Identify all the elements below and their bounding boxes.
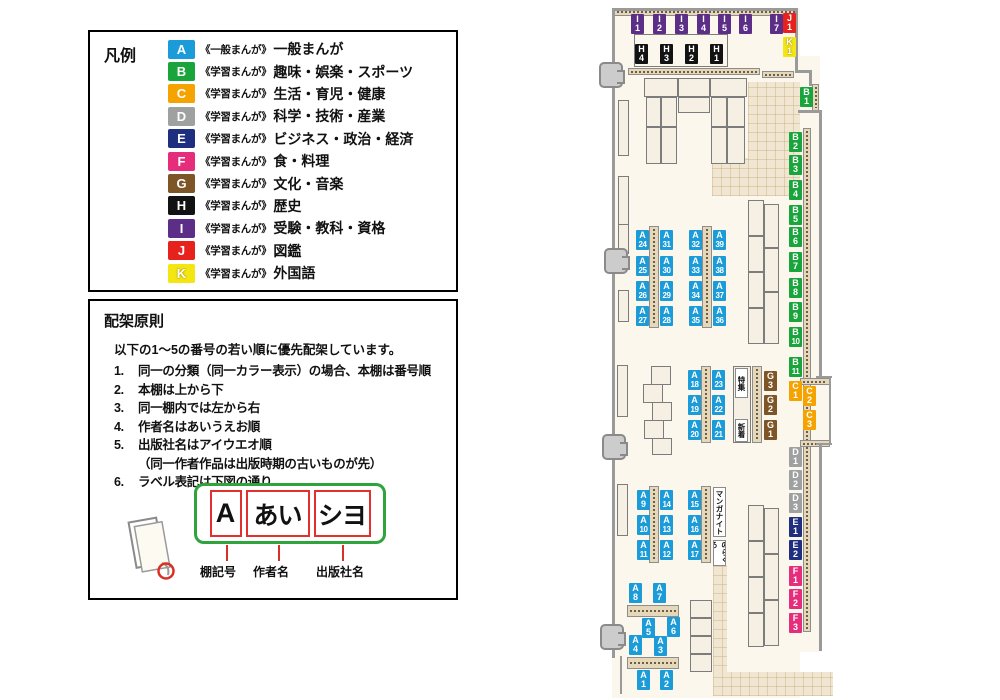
- shelf-label-number: 3: [679, 24, 684, 33]
- shelf-label-number: 3: [793, 165, 798, 174]
- shelf-label-number: 17: [691, 550, 699, 559]
- shelf: [764, 292, 779, 344]
- shelf-label-i1: I1: [631, 14, 644, 34]
- shelf-label-number: 4: [639, 54, 644, 63]
- shelf-label-a7: A7: [653, 583, 666, 603]
- shelf-label-f3: F3: [789, 613, 802, 633]
- shelf-label-i3: I3: [675, 14, 688, 34]
- shelf-label-a18: A18: [688, 370, 701, 390]
- shelf-label-number: 28: [663, 316, 671, 325]
- wall: [612, 8, 798, 11]
- table: [644, 78, 678, 97]
- bookshelf: [702, 226, 712, 328]
- shelf: [764, 600, 779, 646]
- shelf-label-number: 33: [692, 266, 700, 275]
- table: [678, 78, 710, 97]
- shelf-label-j1: J1: [783, 13, 796, 33]
- wall: [819, 112, 822, 378]
- wall-shelf: [618, 176, 629, 226]
- shelf-label-letter: A: [692, 257, 699, 266]
- shelf-label-number: 3: [793, 503, 798, 512]
- shelf-label-number: 7: [793, 262, 798, 271]
- shelf-label-a33: A33: [689, 256, 702, 276]
- shelf-label-number: 4: [633, 645, 638, 654]
- shelf-label-g1: G1: [764, 420, 777, 440]
- bookshelf: [701, 366, 711, 443]
- shelf-label-number: 31: [663, 240, 671, 249]
- walkway: [713, 565, 727, 675]
- table: [661, 127, 677, 164]
- shelf-label-b5: B5: [789, 205, 802, 225]
- shelf-label-letter: A: [691, 541, 698, 550]
- shelf-label-a32: A32: [689, 230, 702, 250]
- wall: [829, 377, 831, 445]
- shelf-label-a31: A31: [660, 230, 673, 250]
- shelf-label-number: 26: [639, 291, 647, 300]
- area-label: 特集: [735, 368, 748, 398]
- table: [661, 97, 677, 127]
- shelf-label-number: 11: [792, 367, 799, 376]
- area-label: のらくろ: [713, 540, 726, 566]
- shelf-label-number: 39: [716, 240, 724, 249]
- shelf-label-letter: A: [663, 541, 670, 550]
- shelf: [764, 508, 779, 554]
- shelf: [748, 200, 764, 236]
- shelf-label-number: 3: [664, 54, 669, 63]
- shelf-label-letter: A: [663, 307, 670, 316]
- entrance-door: [604, 248, 628, 274]
- shelf-label-number: 10: [640, 525, 648, 534]
- shelf-label-h3: H3: [660, 44, 673, 64]
- bookshelf: [762, 71, 794, 78]
- shelf-label-i2: I2: [653, 14, 666, 34]
- table: [710, 78, 747, 97]
- shelf-label-number: 5: [722, 24, 727, 33]
- shelf-label-a39: A39: [713, 230, 726, 250]
- shelf-label-b9: B9: [789, 302, 802, 322]
- shelf-label-number: 3: [793, 623, 798, 632]
- shelf: [690, 618, 712, 636]
- shelf-label-a4: A4: [629, 635, 642, 655]
- table: [644, 420, 664, 439]
- shelf-label-number: 2: [793, 480, 798, 489]
- shelf-label-number: 3: [768, 381, 773, 390]
- shelf: [764, 554, 779, 600]
- shelf-label-a8: A8: [629, 583, 642, 603]
- wall: [620, 656, 622, 694]
- shelf-label-h1: H1: [710, 44, 723, 64]
- shelf-label-number: 16: [691, 525, 699, 534]
- shelf-label-b7: B7: [789, 252, 802, 272]
- bookshelf: [627, 605, 679, 617]
- bookshelf: [800, 378, 830, 385]
- shelf-label-a16: A16: [688, 515, 701, 535]
- shelf-label-a23: A23: [712, 370, 725, 390]
- wall-shelf: [617, 365, 628, 417]
- shelf-label-letter: A: [663, 282, 670, 291]
- shelf-label-letter: A: [639, 257, 646, 266]
- shelf-label-letter: A: [663, 491, 670, 500]
- shelf-label-number: 22: [715, 405, 723, 414]
- shelf: [690, 600, 712, 618]
- shelf: [748, 236, 764, 272]
- shelf-label-number: 5: [793, 215, 798, 224]
- shelf-label-a29: A29: [660, 281, 673, 301]
- shelf-label-b4: B4: [789, 180, 802, 200]
- table: [651, 366, 671, 385]
- shelf-label-a27: A27: [636, 306, 649, 326]
- shelf-label-d1: D1: [789, 447, 802, 467]
- shelf-label-a13: A13: [660, 515, 673, 535]
- shelf-label-number: 21: [715, 430, 723, 439]
- shelf-label-number: 4: [701, 24, 706, 33]
- shelf-label-letter: A: [663, 231, 670, 240]
- shelf: [690, 654, 712, 672]
- shelf-label-number: 3: [658, 646, 663, 655]
- wall-shelf: [617, 484, 628, 536]
- shelf-label-k1: K1: [783, 37, 796, 57]
- shelf-label-number: 2: [768, 405, 773, 414]
- shelf-label-a6: A6: [667, 617, 680, 637]
- wall: [612, 8, 615, 658]
- shelf-label-d3: D3: [789, 493, 802, 513]
- shelf-label-number: 2: [664, 680, 669, 689]
- bookshelf: [649, 226, 659, 328]
- shelf-label-i4: I4: [697, 14, 710, 34]
- table: [711, 127, 727, 164]
- shelf-label-a35: A35: [689, 306, 702, 326]
- shelf-label-number: 1: [641, 680, 646, 689]
- shelf-label-a21: A21: [712, 420, 725, 440]
- shelf-label-b10: B10: [789, 327, 802, 347]
- shelf-label-letter: A: [640, 516, 647, 525]
- shelf-label-number: 24: [639, 240, 647, 249]
- shelf-label-letter: A: [692, 231, 699, 240]
- shelf-label-d2: D2: [789, 470, 802, 490]
- shelf-label-a11: A11: [637, 540, 650, 560]
- shelf-label-number: 8: [633, 593, 638, 602]
- shelf-label-i7: I7: [770, 14, 783, 34]
- shelf-label-a22: A22: [712, 395, 725, 415]
- entrance-door: [600, 624, 624, 650]
- shelf-label-number: 38: [716, 266, 724, 275]
- shelf-label-i6: I6: [739, 14, 752, 34]
- shelf-label-b8: B8: [789, 278, 802, 298]
- shelf-label-a37: A37: [713, 281, 726, 301]
- shelf-label-number: 7: [774, 24, 779, 33]
- shelf-label-letter: A: [663, 516, 670, 525]
- shelf-label-number: 2: [657, 24, 662, 33]
- area-label: マンガナイト: [713, 487, 726, 537]
- shelf: [764, 248, 779, 292]
- shelf-label-letter: A: [716, 257, 723, 266]
- entrance-door: [602, 434, 626, 460]
- shelf-label-number: 6: [743, 24, 748, 33]
- entrance-door: [599, 62, 623, 88]
- table: [727, 127, 745, 164]
- shelf-label-a38: A38: [713, 256, 726, 276]
- shelf-label-letter: A: [715, 396, 722, 405]
- walkway: [713, 672, 833, 696]
- shelf-label-letter: A: [692, 282, 699, 291]
- table: [652, 438, 672, 455]
- shelf-label-letter: B: [792, 358, 799, 367]
- shelf-label-number: 1: [793, 457, 798, 466]
- bookshelf: [628, 68, 760, 75]
- shelf: [748, 308, 764, 344]
- table: [646, 127, 661, 164]
- shelf-label-h4: H4: [635, 44, 648, 64]
- shelf-label-number: 27: [639, 316, 647, 325]
- shelf-label-a17: A17: [688, 540, 701, 560]
- shelf-label-number: 2: [793, 599, 798, 608]
- shelf-label-number: 11: [640, 550, 647, 559]
- shelf-label-number: 10: [792, 337, 800, 346]
- shelf-label-number: 19: [691, 405, 699, 414]
- shelf-label-number: 2: [807, 396, 812, 405]
- shelf: [748, 577, 764, 613]
- shelf-label-letter: A: [639, 282, 646, 291]
- shelf-label-a30: A30: [660, 256, 673, 276]
- shelf-label-number: 6: [671, 627, 676, 636]
- shelf-label-letter: A: [692, 307, 699, 316]
- shelf-label-number: 7: [657, 593, 662, 602]
- shelf-label-number: 8: [793, 288, 798, 297]
- shelf-label-b6: B6: [789, 227, 802, 247]
- shelf-label-number: 2: [793, 142, 798, 151]
- shelf-label-a15: A15: [688, 490, 701, 510]
- shelf-label-b1: B1: [800, 87, 813, 107]
- shelf-label-a25: A25: [636, 256, 649, 276]
- shelf-label-e2: E2: [789, 540, 802, 560]
- wall: [819, 445, 822, 651]
- shelf-label-b11: B11: [789, 357, 802, 377]
- shelf-label-c3: C3: [803, 410, 816, 430]
- shelf-label-number: 13: [663, 525, 671, 534]
- shelf-label-letter: A: [716, 282, 723, 291]
- shelf-label-a5: A5: [642, 618, 655, 638]
- table: [643, 384, 663, 403]
- shelf-label-letter: A: [639, 231, 646, 240]
- table: [652, 402, 672, 421]
- shelf-label-number: 34: [692, 291, 700, 300]
- shelf-label-number: 36: [716, 316, 724, 325]
- shelf-label-number: 1: [793, 391, 798, 400]
- table: [678, 97, 710, 113]
- shelf-label-number: 2: [793, 550, 798, 559]
- shelf-label-number: 1: [793, 576, 798, 585]
- page: 凡例 A《一般まんが》一般まんがB《学習まんが》趣味・娯楽・スポーツC《学習まん…: [0, 0, 1000, 700]
- shelf-label-letter: A: [716, 231, 723, 240]
- floor-map: I1I2I3I4I5I6I7J1K1H4H3H2H1B1B2B3B4B5B6B7…: [0, 0, 1000, 700]
- shelf-label-f1: F1: [789, 566, 802, 586]
- shelf-label-number: 23: [715, 380, 723, 389]
- shelf-label-g2: G2: [764, 395, 777, 415]
- shelf-label-letter: A: [691, 371, 698, 380]
- shelf-label-a28: A28: [660, 306, 673, 326]
- shelf-label-a1: A1: [637, 670, 650, 690]
- shelf-label-number: 1: [804, 97, 809, 106]
- shelf-label-letter: A: [691, 516, 698, 525]
- shelf-label-g3: G3: [764, 371, 777, 391]
- shelf: [748, 505, 764, 541]
- shelf-label-letter: A: [663, 257, 670, 266]
- table: [646, 97, 661, 127]
- bookshelf: [627, 657, 679, 669]
- bookshelf: [649, 486, 659, 563]
- shelf-label-i5: I5: [718, 14, 731, 34]
- shelf-label-number: 9: [793, 312, 798, 321]
- shelf: [748, 541, 764, 577]
- shelf-label-number: 6: [793, 237, 798, 246]
- shelf-label-a34: A34: [689, 281, 702, 301]
- shelf-label-number: 20: [691, 430, 699, 439]
- wall-shelf: [618, 290, 629, 322]
- area-label: 新着: [735, 419, 748, 442]
- shelf-label-b3: B3: [789, 155, 802, 175]
- shelf-label-letter: A: [716, 307, 723, 316]
- shelf-label-e1: E1: [789, 517, 802, 537]
- shelf-label-number: 2: [689, 54, 694, 63]
- shelf-label-number: 1: [793, 527, 798, 536]
- shelf: [690, 636, 712, 654]
- shelf-label-number: 29: [663, 291, 671, 300]
- shelf-label-number: 15: [691, 500, 699, 509]
- bookshelf: [812, 84, 819, 111]
- shelf-label-a19: A19: [688, 395, 701, 415]
- shelf-label-number: 18: [691, 380, 699, 389]
- table: [711, 97, 727, 127]
- shelf-label-b2: B2: [789, 132, 802, 152]
- shelf-label-a2: A2: [660, 670, 673, 690]
- wall-shelf: [618, 100, 629, 156]
- shelf-label-h2: H2: [685, 44, 698, 64]
- shelf-label-a20: A20: [688, 420, 701, 440]
- shelf-label-number: 3: [807, 420, 812, 429]
- wall: [809, 70, 812, 86]
- shelf-label-number: 30: [663, 266, 671, 275]
- shelf-label-number: 14: [663, 500, 671, 509]
- bookshelf: [701, 486, 711, 563]
- bookshelf: [752, 366, 762, 443]
- shelf: [748, 272, 764, 308]
- shelf-label-a9: A9: [637, 490, 650, 510]
- shelf-label-c2: C2: [803, 386, 816, 406]
- shelf-label-letter: A: [639, 307, 646, 316]
- shelf-label-number: 5: [646, 628, 651, 637]
- shelf-label-number: 32: [692, 240, 700, 249]
- shelf-label-a14: A14: [660, 490, 673, 510]
- shelf-label-letter: A: [691, 396, 698, 405]
- shelf-label-a26: A26: [636, 281, 649, 301]
- shelf-label-a12: A12: [660, 540, 673, 560]
- shelf-label-number: 1: [768, 430, 773, 439]
- shelf-label-letter: B: [792, 328, 799, 337]
- shelf-label-a10: A10: [637, 515, 650, 535]
- shelf-label-number: 1: [635, 24, 640, 33]
- shelf-label-letter: A: [715, 421, 722, 430]
- shelf-label-c1: C1: [789, 381, 802, 401]
- shelf-label-number: 25: [639, 266, 647, 275]
- shelf-label-number: 1: [714, 54, 719, 63]
- shelf-label-number: 1: [787, 47, 792, 56]
- shelf-label-a24: A24: [636, 230, 649, 250]
- shelf-label-number: 35: [692, 316, 700, 325]
- shelf-label-number: 12: [663, 550, 671, 559]
- shelf-label-letter: A: [691, 491, 698, 500]
- shelf-label-number: 37: [716, 291, 724, 300]
- shelf-label-a36: A36: [713, 306, 726, 326]
- shelf-label-letter: A: [640, 541, 647, 550]
- shelf-label-letter: A: [691, 421, 698, 430]
- shelf-label-number: 1: [787, 23, 792, 32]
- shelf-label-a3: A3: [654, 636, 667, 656]
- shelf-label-f2: F2: [789, 589, 802, 609]
- shelf-label-number: 9: [641, 500, 646, 509]
- shelf: [748, 613, 764, 647]
- shelf: [764, 204, 779, 248]
- shelf-label-number: 4: [793, 190, 798, 199]
- table: [727, 97, 745, 127]
- shelf-label-letter: A: [715, 371, 722, 380]
